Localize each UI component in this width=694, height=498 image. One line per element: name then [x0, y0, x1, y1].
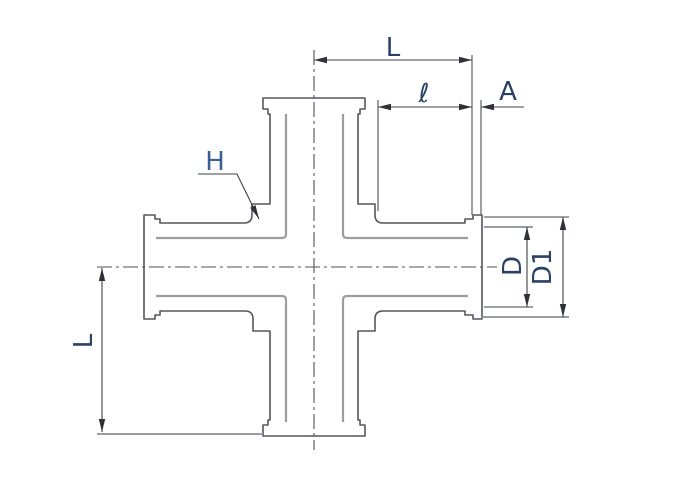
bore-lines	[156, 114, 468, 422]
label-H: H	[205, 147, 225, 177]
label-L-top: L	[386, 33, 401, 63]
centerlines	[97, 50, 497, 450]
label-D1: D1	[528, 249, 558, 286]
cross-fitting-drawing: L ℓ A H D D1	[0, 0, 694, 498]
drawing-page: L ℓ A H D D1	[0, 0, 694, 498]
label-L-left: L	[69, 333, 99, 348]
dimension-L-top: L	[314, 33, 472, 215]
dimension-A: A	[481, 77, 524, 215]
label-ell: ℓ	[418, 79, 430, 109]
label-A: A	[499, 77, 517, 107]
dimension-L-left: L	[69, 268, 263, 434]
label-D: D	[498, 256, 528, 276]
dimension-ell: ℓ	[378, 79, 472, 211]
callout-H: H	[198, 147, 259, 219]
